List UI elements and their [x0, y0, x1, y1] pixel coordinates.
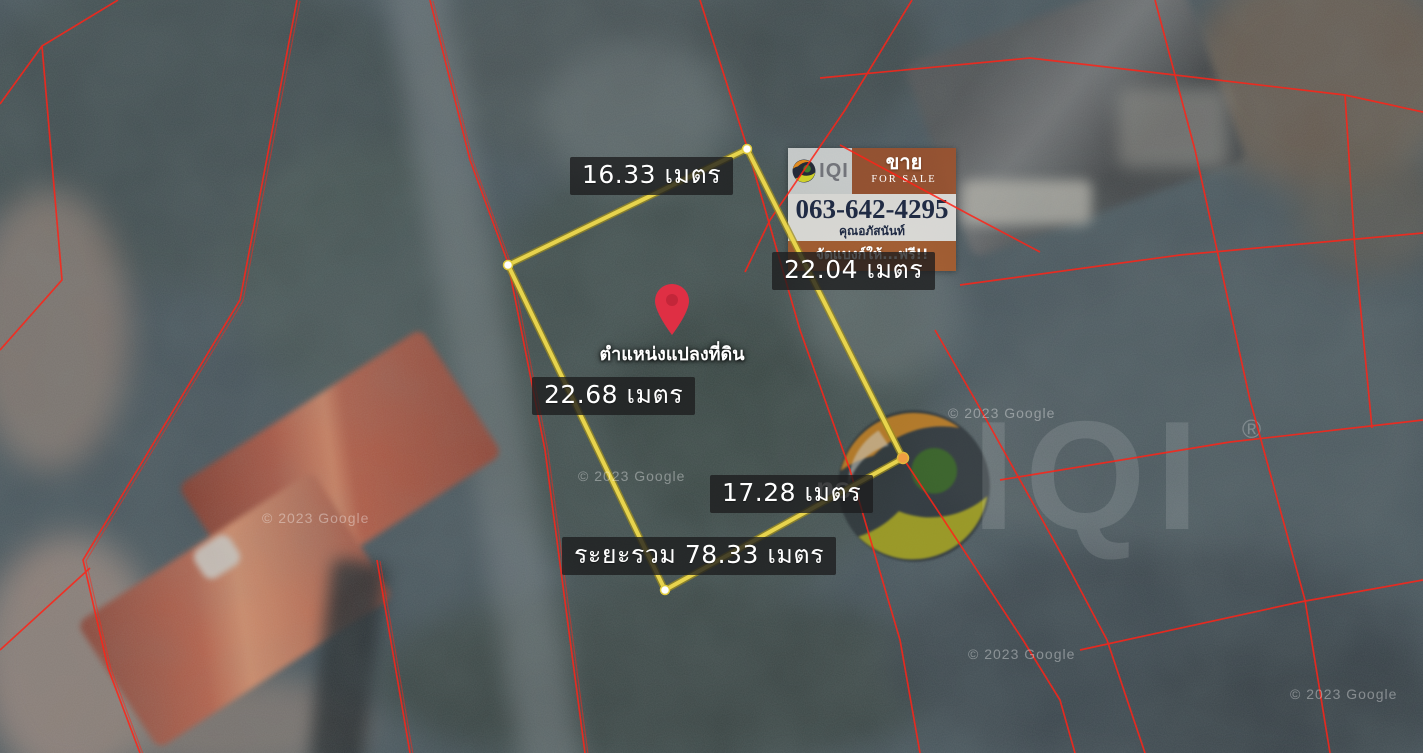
measurement-label-bottom: 17.28 เมตร [710, 475, 873, 513]
terrain-trees-bottomright [885, 545, 1423, 753]
banner-header: IQI ขาย FOR SALE [788, 148, 956, 194]
plot-outline [0, 0, 1423, 753]
google-credit: © 2023 Google [1290, 686, 1397, 702]
parcel-line [1080, 580, 1423, 650]
location-pin-icon [653, 283, 691, 337]
google-credit: © 2023 Google [968, 646, 1075, 662]
parcel-line-double [86, 1, 300, 753]
measurement-label-top: 16.33 เมตร [570, 157, 733, 195]
parcel-line [0, 0, 118, 104]
parcel-line [1155, 0, 1330, 753]
terrain-soil-bottomleft-2 [90, 675, 370, 753]
banner-title-thai: ขาย [852, 151, 956, 173]
parcel-line [700, 0, 920, 753]
banner-contact: 063-642-4295 คุณอภัสนันท์ [788, 194, 956, 241]
google-credit: © 2023 Google [578, 468, 685, 484]
terrain-soil-left [0, 190, 130, 470]
terrain-trees-midleft [230, 140, 500, 410]
iqi-globe-icon [791, 158, 817, 184]
parcel-line-double [380, 561, 413, 753]
iqi-logo: IQI [788, 148, 852, 194]
photo-texture [0, 0, 1423, 753]
iqi-logo-text: IQI [819, 160, 849, 183]
parcel-line [83, 0, 297, 753]
pin-label: ตำแหน่งแปลงที่ดิน [599, 339, 744, 368]
banner-title-english: FOR SALE [852, 173, 956, 186]
terrain-trees-above-plot [700, 0, 930, 140]
red-roof-building-upper [178, 328, 503, 612]
house-roof-facet [1118, 88, 1228, 168]
terrain-trees-topcenter [420, 0, 770, 170]
parcel-line [960, 233, 1423, 285]
terrain-trees-brown-topright [1190, 0, 1423, 190]
banner-title: ขาย FOR SALE [852, 148, 956, 194]
registered-trademark-icon: ® [1242, 414, 1261, 445]
terrain-trees-topleft [0, 0, 430, 290]
plot-vertex-left [504, 261, 513, 270]
google-credit: © 2023 Google [948, 405, 1055, 421]
phone-number: 063-642-4295 [788, 195, 956, 224]
terrain-brown-right [1295, 145, 1423, 275]
land-listing-satellite-map: IQI ขาย FOR SALE 063-642-4295 คุณอภัสนัน… [0, 0, 1423, 753]
plot-vertex-top [743, 145, 752, 154]
parcel-line [377, 560, 410, 753]
terrain-soil-bottomleft [0, 535, 160, 753]
measurement-label-total: ระยะรวม 78.33 เมตร [562, 537, 836, 575]
parcel-line [0, 46, 62, 350]
measurement-label-right: 22.04 เมตร [772, 252, 935, 290]
satellite-photo [0, 0, 1423, 753]
parcel-line [820, 58, 1423, 112]
plot-vertex-bottom [661, 586, 670, 595]
house-light-wall [962, 180, 1092, 225]
measurement-label-left: 22.68 เมตร [532, 377, 695, 415]
google-credit: © 2023 Google [262, 510, 369, 526]
terrain-trees-bottomcenter [375, 585, 945, 753]
parcel-line [1345, 95, 1372, 428]
driveway-shadow [307, 557, 387, 753]
parcel-line [0, 568, 90, 650]
contact-name: คุณอภัสนันท์ [788, 224, 956, 238]
white-shed-roof [190, 531, 244, 582]
parcel-boundary-lines [0, 0, 1423, 753]
